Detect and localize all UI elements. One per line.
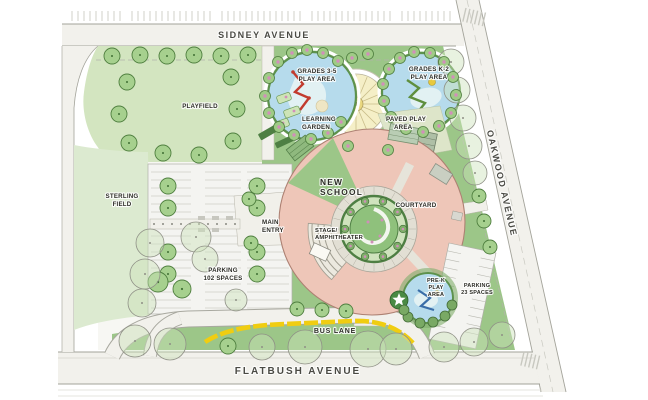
new-school-label: NEW (320, 177, 343, 187)
svg-text:PLAY AREA: PLAY AREA (411, 74, 448, 81)
bollard (171, 223, 173, 225)
flower-dot (449, 111, 452, 114)
tree-center (227, 345, 229, 347)
bollard (153, 223, 155, 225)
flower-dot (336, 59, 339, 62)
tree-center (256, 185, 258, 187)
tree-center (126, 81, 128, 83)
svg-text:ENTRY: ENTRY (262, 227, 284, 234)
main-entry-label: MAIN (262, 219, 279, 226)
tree-center (144, 273, 146, 275)
tree-center (468, 145, 470, 147)
flower-dot (437, 124, 440, 127)
sterling-field-label: STERLING (106, 193, 139, 200)
flower-dot (321, 51, 324, 54)
bollard (180, 223, 182, 225)
tree-center (256, 207, 258, 209)
tree-center (474, 172, 476, 174)
tree-center (501, 334, 503, 336)
tree-center (128, 142, 130, 144)
learning-garden-label: LEARNING (302, 116, 336, 123)
flower-dot (309, 137, 312, 140)
svg-text:AMPHITHEATER: AMPHITHEATER (315, 235, 364, 241)
courtyard-label: COURTYARD (396, 202, 437, 209)
tree-center (166, 55, 168, 57)
svg-text:102 SPACES: 102 SPACES (203, 275, 242, 282)
flower-dot (381, 82, 384, 85)
flower-dot (412, 50, 415, 53)
playfield-label: PLAYFIELD (182, 103, 218, 110)
tree-center (235, 299, 237, 301)
tree-center (193, 54, 195, 56)
svg-text:FIELD: FIELD (113, 201, 132, 208)
flower-dot (454, 93, 457, 96)
pre-k-play-area-label: PRE-K (427, 278, 445, 284)
grades-3-5-play-area-label: GRADES 3-5 (297, 68, 336, 75)
tree-center (149, 242, 151, 244)
tree-center (256, 251, 258, 253)
grades-k-2-play-area-label: GRADES K-2 (409, 66, 450, 73)
bollard (216, 223, 218, 225)
flower-dot (305, 48, 308, 51)
flower-dot (382, 200, 385, 203)
svg-text:PLAY AREA: PLAY AREA (299, 76, 336, 83)
hedge-shrub (428, 317, 438, 327)
flower-dot (382, 99, 385, 102)
tree-center (443, 346, 445, 348)
flower-dot (364, 255, 367, 258)
tree-center (367, 348, 369, 350)
tree-center (139, 54, 141, 56)
bollard (234, 223, 236, 225)
hedge-shrub (415, 318, 425, 328)
flower-dot (290, 51, 293, 54)
hedge-shrub (440, 311, 450, 321)
flower-dot (364, 200, 367, 203)
flower-dot (263, 94, 266, 97)
flower-dot (349, 245, 352, 248)
tree-center (167, 185, 169, 187)
tree-center (111, 55, 113, 57)
flower-dot (326, 131, 329, 134)
bus-lane-label: BUS LANE (314, 328, 356, 335)
site-plan-drawing: SIDNEY AVENUE OAKWOOD AVENUE FLATBUSH AV… (0, 0, 648, 400)
svg-text:SCHOOL: SCHOOL (320, 187, 363, 197)
flower-dot (428, 51, 431, 54)
tree-center (250, 242, 252, 244)
flower-dot (398, 56, 401, 59)
svg-text:23 SPACES: 23 SPACES (461, 290, 493, 296)
tree-center (118, 113, 120, 115)
svg-text:PLAY: PLAY (429, 285, 444, 291)
flower-dot (346, 144, 349, 147)
tree-center (204, 258, 206, 260)
flower-dot (451, 75, 454, 78)
tree-center (483, 220, 485, 222)
sidewalk-hatch-marks (72, 11, 450, 21)
flower-dot (292, 133, 295, 136)
tree-center (141, 302, 143, 304)
flower-dot (421, 130, 424, 133)
tree-center (230, 76, 232, 78)
tree-center (167, 273, 169, 275)
flower-dot (396, 245, 399, 248)
tree-center (473, 341, 475, 343)
tree-center (162, 152, 164, 154)
flower-dot (276, 60, 279, 63)
bollard (207, 223, 209, 225)
tree-center (261, 346, 263, 348)
tree-center (134, 340, 136, 342)
tree-center (256, 273, 258, 275)
flower-dot (339, 120, 342, 123)
tree-center (181, 288, 183, 290)
bollard (162, 223, 164, 225)
site-plan-canvas: SIDNEY AVENUE OAKWOOD AVENUE FLATBUSH AV… (0, 0, 648, 400)
tree-center (248, 198, 250, 200)
tree-center (247, 54, 249, 56)
bollard (225, 223, 227, 225)
flower-dot (344, 228, 347, 231)
flower-dot (387, 67, 390, 70)
tree-center (169, 343, 171, 345)
flower-dot (267, 76, 270, 79)
tree-center (395, 348, 397, 350)
tree-center (198, 154, 200, 156)
tree-center (167, 207, 169, 209)
svg-text:GARDEN: GARDEN (302, 124, 330, 131)
tree-center (195, 236, 197, 238)
parking-23-label: PARKING (464, 283, 490, 289)
flower-dot (366, 52, 369, 55)
parking-102-label: PARKING (208, 267, 237, 274)
tree-center (345, 310, 347, 312)
paved-play-area-label: PAVED PLAY (386, 116, 427, 123)
tree-center (462, 117, 464, 119)
flower-dot (350, 56, 353, 59)
tree-center (296, 308, 298, 310)
hedge-shrub (399, 305, 409, 315)
tree-center (478, 195, 480, 197)
tree-center (220, 55, 222, 57)
tree-center (489, 246, 491, 248)
stage-amphitheater-label: STAGE/ (315, 228, 338, 234)
flower-dot (277, 125, 280, 128)
hedge-shrub (447, 300, 457, 310)
tree-center (167, 251, 169, 253)
svg-text:AREA: AREA (428, 292, 444, 298)
flower-dot (386, 148, 389, 151)
flower-dot (442, 60, 445, 63)
flower-dot (349, 211, 352, 214)
street-label-sidney-avenue: SIDNEY AVENUE (218, 30, 310, 40)
tree-center (232, 140, 234, 142)
flower-dot (267, 111, 270, 114)
flower-dot (382, 255, 385, 258)
street-label-flatbush-avenue: FLATBUSH AVENUE (235, 366, 361, 377)
flower-dot (396, 211, 399, 214)
tree-center (450, 61, 452, 63)
flower-dot (402, 228, 405, 231)
svg-text:AREA: AREA (394, 124, 413, 131)
tree-center (321, 309, 323, 311)
tree-center (236, 108, 238, 110)
tree-center (304, 346, 306, 348)
